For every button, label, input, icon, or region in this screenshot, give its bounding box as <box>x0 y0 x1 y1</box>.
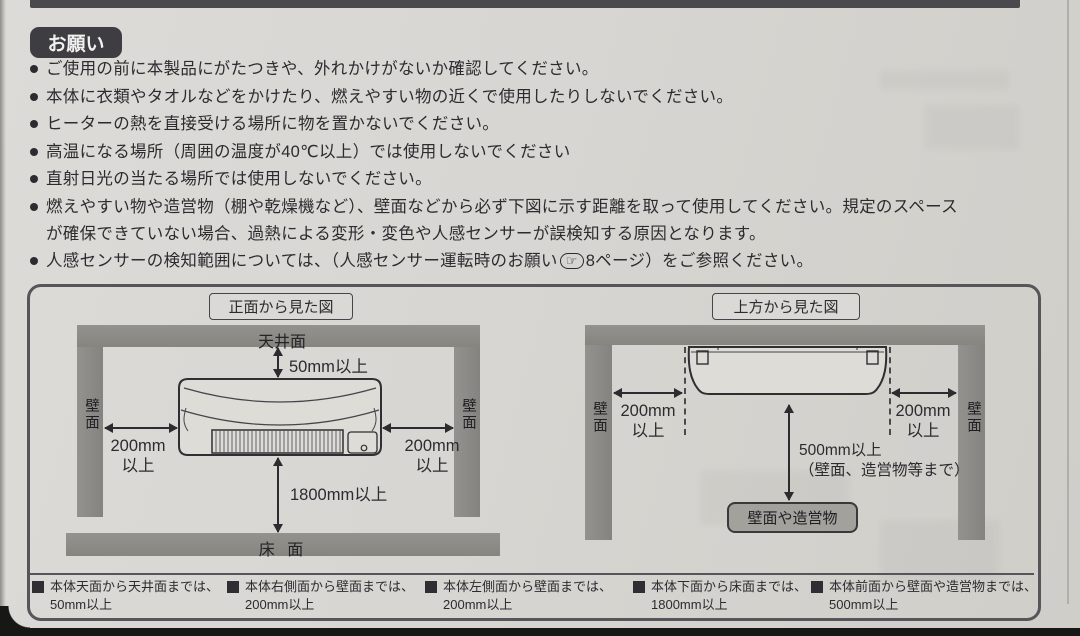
page-corner <box>0 606 30 636</box>
front-view-title: 正面から見た図 <box>228 296 333 317</box>
bullet-text: 直射日光の当たる場所では使用しないでください。 <box>46 169 432 190</box>
top-dim-front-arrow <box>788 405 790 500</box>
bullet-item: 本体に衣類やタオルなどをかけたり、燃えやすい物の近くで使用したりしないでください… <box>30 87 733 108</box>
bullet-dot <box>30 93 38 101</box>
bullet-text-before-icon: 人感センサーの検知範囲については、（人感センサー運転時のお願い <box>46 252 558 270</box>
legend-item: 本体左側面から壁面までは、 200mm以上 <box>425 578 612 613</box>
bullet-item: 人感センサーの検知範囲については、（人感センサー運転時のお願い☞8ページ）をご参… <box>30 251 813 272</box>
bullet-item: 直射日光の当たる場所では使用しないでください。 <box>30 169 432 190</box>
bullet-item: 高温になる場所（周囲の温度が40℃以上）では使用しないでください <box>30 142 571 163</box>
top-rear-wall-band <box>585 325 985 345</box>
top-dim-front-label: 500mm以上 （壁面、造営物等まで） <box>799 441 970 481</box>
legend-line1: 本体天面から天井面までは、 <box>50 578 219 596</box>
request-badge-label: お願い <box>47 29 104 56</box>
front-dim-left-arrow <box>105 427 177 429</box>
bullet-item: ご使用の前に本製品にがたつきや、外れかけがないか確認してください。 <box>30 59 599 80</box>
panel-separator-line <box>30 573 1034 575</box>
front-dim-bottom-label: 1800mm以上 <box>290 481 387 505</box>
front-right-wall-label: 壁面 <box>458 398 479 431</box>
heater-front-view-drawing <box>178 378 382 456</box>
print-bleedthrough <box>880 70 1010 90</box>
bullet-dot <box>30 203 38 211</box>
obstacle-label: 壁面や造営物 <box>747 507 837 528</box>
bullet-text: 燃えやすい物や造営物（棚や乾燥機など）、壁面などから必ず下図に示す距離を取って使… <box>46 197 958 218</box>
bullet-text: が確保できていない場合、過熱による変形・変色や人感センサーが誤検知する原因となり… <box>46 224 766 245</box>
bullet-dot <box>30 120 38 128</box>
dim-value: 200mm <box>389 436 475 456</box>
legend-text: 本体前面から壁面や造営物までは、 500mm以上 <box>829 578 1037 613</box>
legend-item: 本体右側面から壁面までは、 200mm以上 <box>227 578 414 613</box>
dim-note: （壁面、造営物等まで） <box>799 461 970 481</box>
legend-line1: 本体左側面から壁面までは、 <box>443 578 612 596</box>
legend-line2: 1800mm以上 <box>651 596 807 614</box>
front-dim-top-arrow <box>277 348 279 377</box>
bullet-text-after-icon: 8ページ）をご参照ください。 <box>586 252 814 270</box>
legend-square-icon <box>811 581 823 593</box>
top-view-title-box: 上方から見た図 <box>712 293 860 320</box>
dim-unit: 以上 <box>605 421 691 441</box>
legend-item: 本体前面から壁面や造営物までは、 500mm以上 <box>811 578 1037 613</box>
page-left-edge <box>0 0 6 636</box>
top-dim-right-arrow <box>892 392 956 394</box>
front-dim-left-label: 200mm 以上 <box>95 436 181 476</box>
legend-square-icon <box>227 581 239 593</box>
dim-value: 200mm <box>95 436 181 456</box>
top-dim-right-label: 200mm 以上 <box>880 401 966 441</box>
legend-line1: 本体右側面から壁面までは、 <box>245 578 414 596</box>
front-dim-top-label: 50mm以上 <box>289 353 368 377</box>
bullet-text: ヒーターの熱を直接受ける場所に物を置かないでください。 <box>46 114 499 135</box>
legend-line2: 200mm以上 <box>245 596 414 614</box>
bullet-dot <box>30 257 38 265</box>
bullet-item: ヒーターの熱を直接受ける場所に物を置かないでください。 <box>30 114 499 135</box>
dim-value: 200mm <box>605 401 691 421</box>
page-header-bar <box>30 0 1020 8</box>
legend-line2: 500mm以上 <box>829 596 1037 614</box>
legend-line2: 200mm以上 <box>443 596 612 614</box>
front-left-wall-label: 壁面 <box>81 398 102 431</box>
print-bleedthrough <box>925 105 1020 150</box>
top-view-title: 上方から見た図 <box>733 296 838 317</box>
front-dim-right-arrow <box>383 427 453 429</box>
bullet-item-continuation: が確保できていない場合、過熱による変形・変色や人感センサーが誤検知する原因となり… <box>46 224 766 245</box>
front-view-title-box: 正面から見た図 <box>209 293 353 320</box>
request-section-badge: お願い <box>30 27 122 58</box>
legend-square-icon <box>633 581 645 593</box>
front-dim-bottom-arrow <box>277 458 279 532</box>
page-right-edge <box>1067 0 1069 604</box>
front-dim-right-label: 200mm 以上 <box>389 436 475 476</box>
top-right-wall-label: 壁面 <box>963 401 984 434</box>
bullet-text: 人感センサーの検知範囲については、（人感センサー運転時のお願い☞8ページ）をご参… <box>46 251 813 272</box>
dim-value: 500mm以上 <box>799 441 970 461</box>
legend-text: 本体天面から天井面までは、 50mm以上 <box>50 578 219 613</box>
bullet-text: 本体に衣類やタオルなどをかけたり、燃えやすい物の近くで使用したりしないでください… <box>46 87 733 108</box>
bullet-item: 燃えやすい物や造営物（棚や乾燥機など）、壁面などから必ず下図に示す距離を取って使… <box>30 197 958 218</box>
heater-top-view-drawing <box>685 345 890 403</box>
bullet-dot <box>30 148 38 156</box>
legend-text: 本体左側面から壁面までは、 200mm以上 <box>443 578 612 613</box>
top-left-wall-band <box>585 345 612 540</box>
dim-unit: 以上 <box>389 456 475 476</box>
bullet-dot <box>30 175 38 183</box>
front-left-wall-band <box>77 347 103 517</box>
legend-text: 本体右側面から壁面までは、 200mm以上 <box>245 578 414 613</box>
top-dim-left-label: 200mm 以上 <box>605 401 691 441</box>
legend-item: 本体下面から床面までは、 1800mm以上 <box>633 578 807 613</box>
dim-value: 200mm <box>880 401 966 421</box>
front-floor-label: 床 面 <box>233 536 333 560</box>
legend-line1: 本体下面から床面までは、 <box>651 578 807 596</box>
bullet-text: ご使用の前に本製品にがたつきや、外れかけがないか確認してください。 <box>46 59 599 80</box>
photo-bottom-edge <box>0 628 1080 636</box>
manual-page: お願い ご使用の前に本製品にがたつきや、外れかけがないか確認してください。 本体… <box>0 0 1080 636</box>
page-ref-hand-icon: ☞ <box>560 253 584 269</box>
top-dim-left-arrow <box>614 392 682 394</box>
dim-unit: 以上 <box>880 421 966 441</box>
dim-unit: 以上 <box>95 456 181 476</box>
legend-square-icon <box>425 581 437 593</box>
obstacle-box: 壁面や造営物 <box>727 502 858 533</box>
legend-item: 本体天面から天井面までは、 50mm以上 <box>32 578 219 613</box>
legend-line2: 50mm以上 <box>50 596 219 614</box>
legend-square-icon <box>32 581 44 593</box>
front-right-wall-band <box>454 347 480 517</box>
legend-line1: 本体前面から壁面や造営物までは、 <box>829 578 1037 596</box>
bullet-dot <box>30 65 38 73</box>
bullet-text: 高温になる場所（周囲の温度が40℃以上）では使用しないでください <box>46 142 571 163</box>
legend-text: 本体下面から床面までは、 1800mm以上 <box>651 578 807 613</box>
